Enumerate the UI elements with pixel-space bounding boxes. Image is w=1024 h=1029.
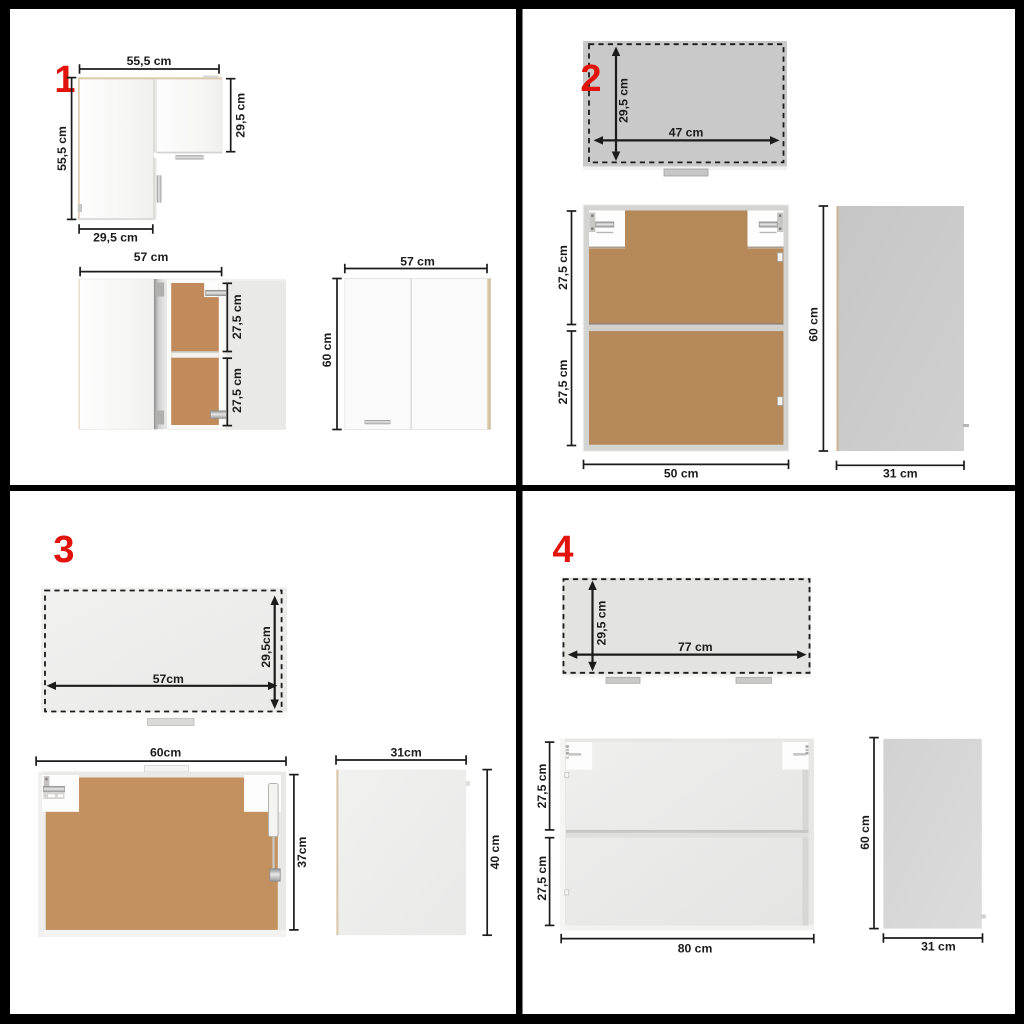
svg-text:60cm: 60cm [150, 746, 181, 760]
svg-text:4: 4 [552, 529, 573, 571]
svg-text:57 cm: 57 cm [400, 254, 435, 268]
svg-text:2: 2 [580, 58, 601, 100]
svg-text:29,5cm: 29,5cm [259, 626, 273, 667]
svg-text:47 cm: 47 cm [669, 126, 704, 140]
svg-text:27,5 cm: 27,5 cm [230, 368, 244, 413]
svg-text:29,5 cm: 29,5 cm [93, 231, 138, 245]
svg-text:60 cm: 60 cm [320, 333, 334, 368]
svg-text:31 cm: 31 cm [921, 940, 956, 954]
svg-text:55,5 cm: 55,5 cm [127, 54, 172, 68]
svg-text:27,5 cm: 27,5 cm [535, 763, 549, 808]
svg-text:31 cm: 31 cm [883, 467, 918, 481]
svg-text:27,5 cm: 27,5 cm [230, 294, 244, 339]
svg-text:55,5 cm: 55,5 cm [55, 126, 69, 171]
svg-text:29,5 cm: 29,5 cm [617, 78, 631, 123]
svg-text:3: 3 [53, 529, 74, 571]
svg-text:60 cm: 60 cm [858, 815, 872, 850]
svg-text:80 cm: 80 cm [678, 941, 713, 955]
svg-text:29,5 cm: 29,5 cm [234, 93, 248, 138]
svg-text:60 cm: 60 cm [807, 307, 821, 342]
svg-text:77 cm: 77 cm [678, 640, 713, 654]
svg-text:27,5 cm: 27,5 cm [535, 856, 549, 901]
svg-text:50 cm: 50 cm [664, 466, 699, 480]
svg-text:31cm: 31cm [391, 746, 422, 760]
svg-text:37cm: 37cm [295, 836, 309, 867]
svg-text:57 cm: 57 cm [134, 250, 169, 264]
svg-text:29,5 cm: 29,5 cm [595, 600, 609, 645]
svg-text:57cm: 57cm [153, 672, 184, 686]
svg-text:27,5 cm: 27,5 cm [556, 359, 570, 404]
svg-text:27,5 cm: 27,5 cm [556, 245, 570, 290]
svg-text:40 cm: 40 cm [488, 835, 502, 870]
